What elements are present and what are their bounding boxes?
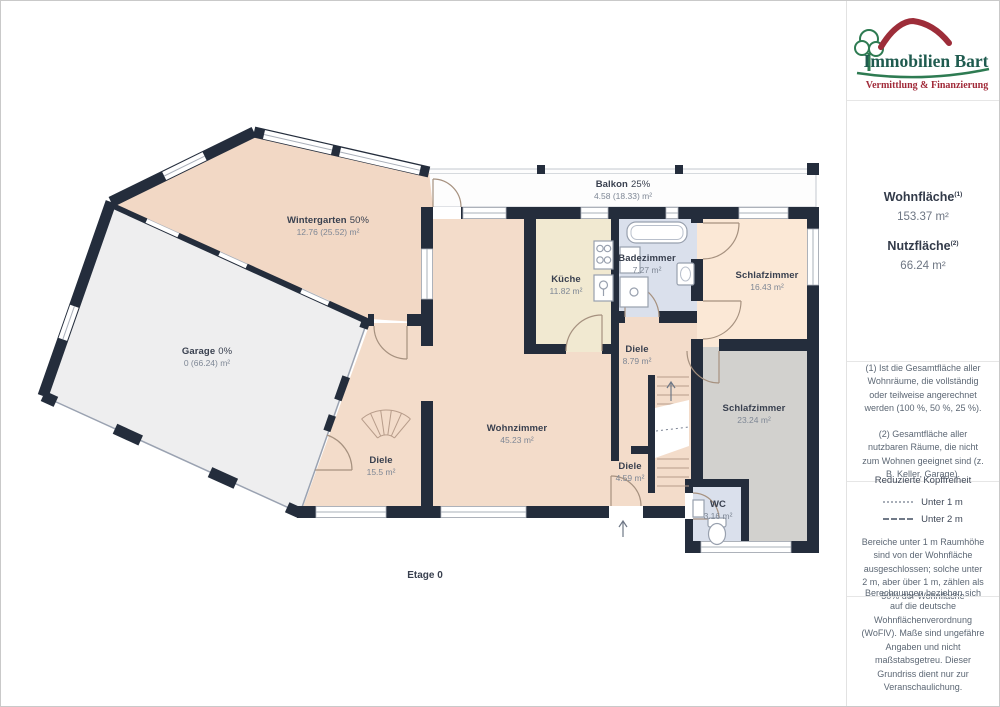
entrance-arrow-icon: [619, 521, 627, 537]
logo-section: Immobilien Bart Vermittlung & Finanzieru…: [847, 1, 999, 100]
room-label-diele-3: Diele 4.59 m²: [616, 462, 645, 483]
toilet-icon: [708, 518, 726, 545]
balcony-post: [675, 165, 683, 174]
stove-icon: [594, 241, 613, 269]
room-label-balkon: Balkon25% 4.58 (18.33) m²: [594, 180, 652, 201]
sidebar: Immobilien Bart Vermittlung & Finanzieru…: [846, 1, 999, 706]
kitchen-sink-icon: [594, 275, 613, 301]
nutzflaeche-title: Nutzfläche(2): [887, 239, 958, 253]
wc-sink-icon: [693, 500, 704, 517]
room-label-schlafzimmer-1: Schlafzimmer 16.43 m²: [736, 271, 799, 292]
headroom-section: Reduzierte Kopffreiheit Unter 1 m Unter …: [847, 481, 999, 596]
room-label-wohnzimmer: Wohnzimmer 45.23 m²: [487, 424, 547, 445]
room-label-wintergarten: Wintergarten50% 12.76 (25.52) m²: [287, 216, 369, 237]
footnotes-section: (1) Ist die Gesamtfläche aller Wohnräume…: [847, 361, 999, 481]
company-logo: Immobilien Bart Vermittlung & Finanzieru…: [853, 11, 993, 91]
room-label-garage: Garage0% 0 (66.24) m²: [182, 347, 232, 368]
wohnflaeche-value: 153.37 m²: [897, 211, 949, 223]
dotted-line-icon: [883, 501, 913, 503]
bath-sink-icon: [677, 263, 694, 285]
room-label-wc: WC 3.16 m²: [704, 500, 733, 521]
area-summary-section: Wohnfläche(1) 153.37 m² Nutzfläche(2) 66…: [847, 100, 999, 361]
legend-under-1m: Unter 1 m: [883, 497, 963, 508]
room-label-badezimmer: Badezimmer 7.27 m²: [618, 254, 676, 275]
room-label-kueche: Küche 11.82 m²: [550, 275, 583, 296]
balcony-post: [807, 163, 819, 175]
shower-icon: [620, 277, 648, 307]
footnote-1: (1) Ist die Gesamtfläche aller Wohnräume…: [860, 362, 986, 416]
logo-title: Immobilien Bart: [864, 51, 989, 71]
room-label-diele-1: Diele 8.79 m²: [623, 345, 652, 366]
footnote-2: (2) Gesamtfläche aller nutzbaren Räume, …: [860, 428, 986, 482]
balcony-post: [537, 165, 545, 174]
roof-icon: [881, 21, 949, 47]
disclaimer-text: Berechnungen beziehen sich auf die deuts…: [860, 587, 986, 695]
legend-under-2m: Unter 2 m: [883, 514, 963, 525]
logo-subtitle: Vermittlung & Finanzierung: [866, 80, 988, 91]
nutzflaeche-value: 66.24 m²: [900, 260, 945, 272]
floorplan-page: Wintergarten50% 12.76 (25.52) m² Balkon2…: [0, 0, 1000, 707]
disclaimer-section: Berechnungen beziehen sich auf die deuts…: [847, 596, 999, 706]
room-label-schlafzimmer-2: Schlafzimmer 23.24 m²: [723, 404, 786, 425]
dashed-line-icon: [883, 518, 913, 520]
floor-label: Etage 0: [407, 570, 443, 581]
wohnflaeche-title: Wohnfläche(1): [884, 190, 963, 204]
room-label-diele-2: Diele 15.5 m²: [367, 456, 396, 477]
bathtub-icon: [627, 222, 687, 243]
headroom-title: Reduzierte Kopffreiheit: [875, 475, 971, 486]
